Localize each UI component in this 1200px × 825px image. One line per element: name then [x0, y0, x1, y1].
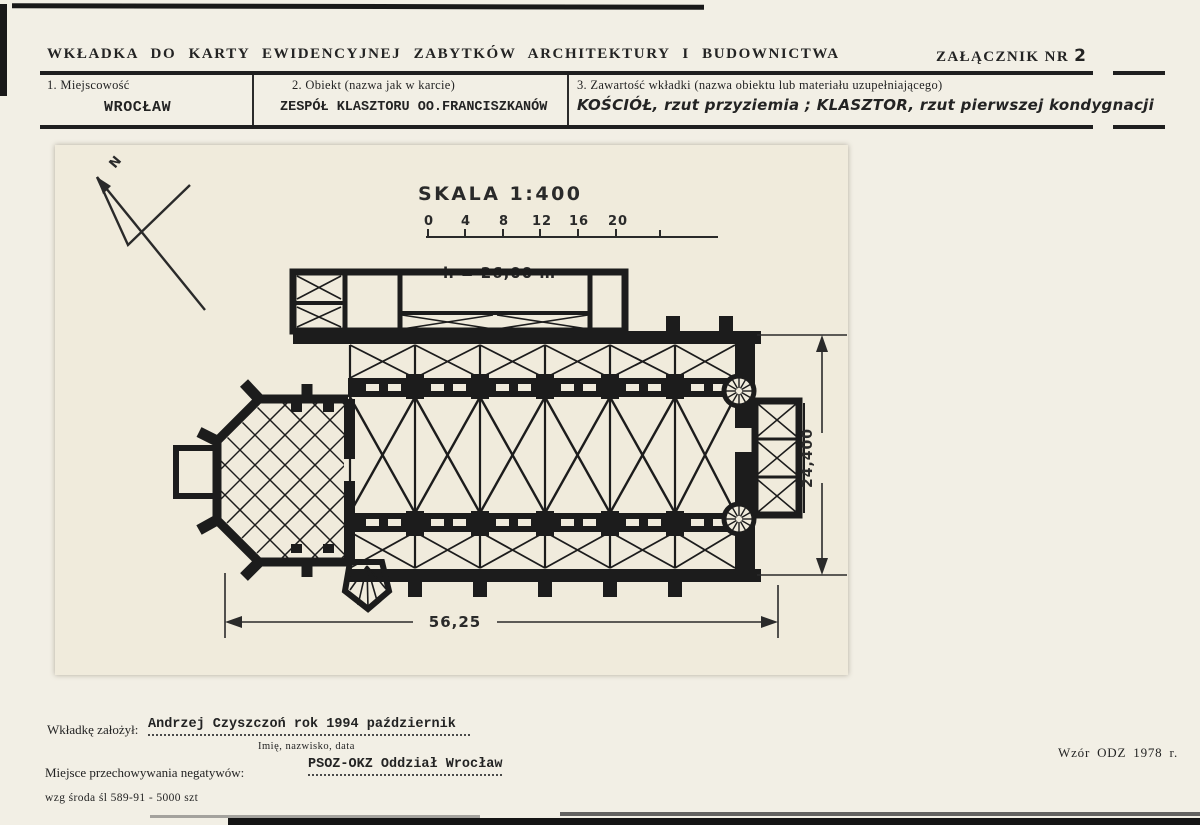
field-contents-label: 3. Zawartość wkładki (nazwa obiektu lub … — [577, 78, 943, 93]
form-version-note: Wzór ODZ 1978 r. — [1058, 745, 1178, 761]
plan-walls — [176, 272, 804, 609]
north-arrow-icon — [97, 177, 205, 310]
attachment-text: ZAŁĄCZNIK NR — [936, 49, 1069, 65]
scan-edge-top — [12, 3, 704, 9]
scale-tick-label: 4 — [461, 214, 471, 229]
print-run-note: wzg środa śl 589-91 - 5000 szt — [45, 792, 198, 804]
fields-rule-end — [1113, 125, 1165, 129]
field-locality-label: 1. Miejscowość — [47, 78, 130, 93]
negatives-value: PSOZ-OKZ Oddział Wrocław — [308, 757, 502, 776]
attachment-number: 2 — [1074, 46, 1087, 66]
founder-label: Wkładkę założył: — [47, 722, 138, 738]
attachment-label: ZAŁĄCZNIK NR2 — [936, 46, 1087, 66]
scale-tick-label: 20 — [608, 214, 628, 229]
scan-edge-left — [0, 4, 7, 96]
header-rule-end — [1113, 71, 1165, 75]
field-object-value: ZESPÓŁ KLASZTORU OO.FRANCISZKANÓW — [280, 100, 547, 115]
page-title: WKŁADKA DO KARTY EWIDENCYJNEJ ZABYTKÓW A… — [47, 46, 840, 63]
dim-width-label: 56,25 — [429, 613, 481, 631]
founder-sublabel: Imię, nazwisko, data — [258, 741, 355, 752]
north-label: N — [107, 153, 126, 172]
scanned-record-card: WKŁADKA DO KARTY EWIDENCYJNEJ ZABYTKÓW A… — [0, 0, 1200, 825]
scan-edge-bottom — [228, 818, 1200, 825]
scale-bar — [426, 229, 718, 237]
negatives-label: Miejsce przechowywania negatywów: — [45, 765, 244, 781]
nave-vault-crosses — [350, 397, 735, 513]
scale-tick-label: 8 — [499, 214, 509, 229]
scale-title: SKALA 1:400 — [418, 183, 583, 205]
floor-plan-drawing: N SKALA 1:400 0 4 8 12 16 20 h = 26,00 m — [55, 145, 848, 675]
dim-height-label: 24,400 — [800, 428, 816, 488]
scale-tick-label: 16 — [569, 214, 589, 229]
field-object-label: 2. Obiekt (nazwa jak w karcie) — [292, 78, 455, 93]
scale-tick-label: 0 — [424, 214, 434, 229]
fields-rule — [40, 125, 1093, 129]
field-divider — [252, 75, 254, 125]
field-divider — [567, 75, 569, 125]
founder-value: Andrzej Czyszczoń rok 1994 październik — [148, 717, 470, 736]
scan-edge-bottom — [560, 812, 1200, 816]
chancel-net-vault — [55, 225, 545, 675]
floor-plan-photo: N SKALA 1:400 0 4 8 12 16 20 h = 26,00 m — [55, 145, 848, 675]
field-contents-value: KOŚCIÓŁ, rzut przyziemia ; KLASZTOR, rzu… — [577, 96, 1154, 114]
field-locality-value: WROCŁAW — [104, 99, 171, 116]
scale-tick-label: 12 — [532, 214, 552, 229]
